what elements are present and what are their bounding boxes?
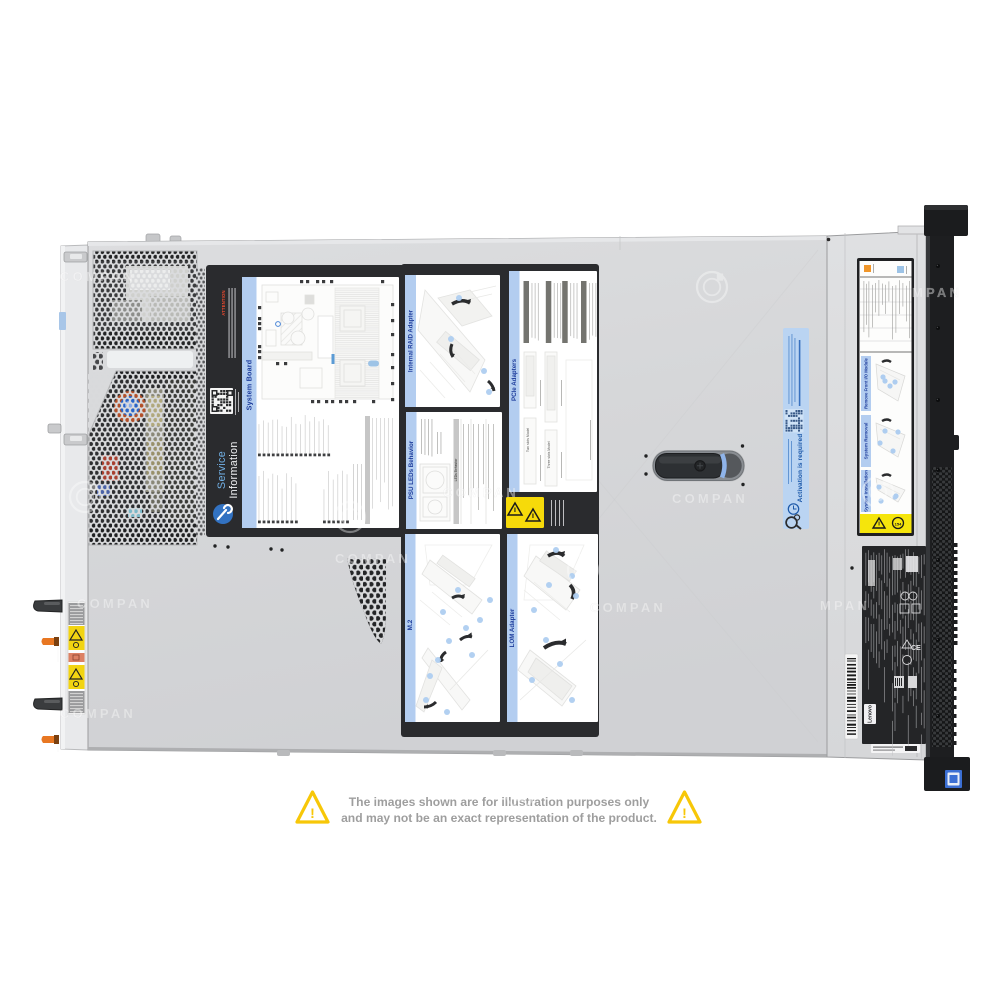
svg-text:154: 154 [895,522,902,527]
svg-text:MPAN: MPAN [912,285,962,300]
svg-text:Remove Front I/O Module: Remove Front I/O Module [863,357,868,408]
svg-text:System Installation: System Installation [863,470,868,512]
svg-text:LOM Adapter: LOM Adapter [509,608,516,647]
svg-text:Two slots Model: Two slots Model [526,428,530,453]
svg-text:and may not be an exact repres: and may not be an exact representation o… [341,811,657,825]
svg-text:The images shown are for illus: The images shown are for illustration pu… [349,795,650,809]
svg-text:PSU LEDs Behavior: PSU LEDs Behavior [408,440,415,499]
svg-text:Three slots Model: Three slots Model [547,441,551,468]
svg-text:COMPAN: COMPAN [335,551,411,566]
svg-text:ATTENTION: ATTENTION [221,290,226,315]
svg-text:System Removal: System Removal [863,423,868,460]
svg-text:System Board: System Board [245,360,254,411]
svg-text:M.2: M.2 [407,619,414,630]
svg-text:!: ! [682,805,687,821]
svg-text:!: ! [310,805,315,821]
svg-text:Activation is required: Activation is required [797,434,804,503]
svg-text:PCIe Adapters: PCIe Adapters [511,358,518,401]
svg-text:COMPAN: COMPAN [77,596,153,611]
svg-text:COMPAN: COMPAN [60,269,136,284]
svg-text:Service: Service [216,451,228,489]
svg-text:COMPAN: COMPAN [590,600,666,615]
svg-text:MPAN: MPAN [820,598,870,613]
svg-text:Information: Information [228,441,240,498]
svg-text:CE: CE [911,645,921,652]
svg-text:Lenovo: Lenovo [867,705,873,723]
svg-text:LEDs Behavior: LEDs Behavior [454,458,458,481]
svg-text:COMPAN: COMPAN [60,706,136,721]
svg-text:COMPAN: COMPAN [443,485,519,500]
svg-text:Internal RAID Adapter: Internal RAID Adapter [408,309,414,372]
svg-text:COMPAN: COMPAN [672,491,748,506]
